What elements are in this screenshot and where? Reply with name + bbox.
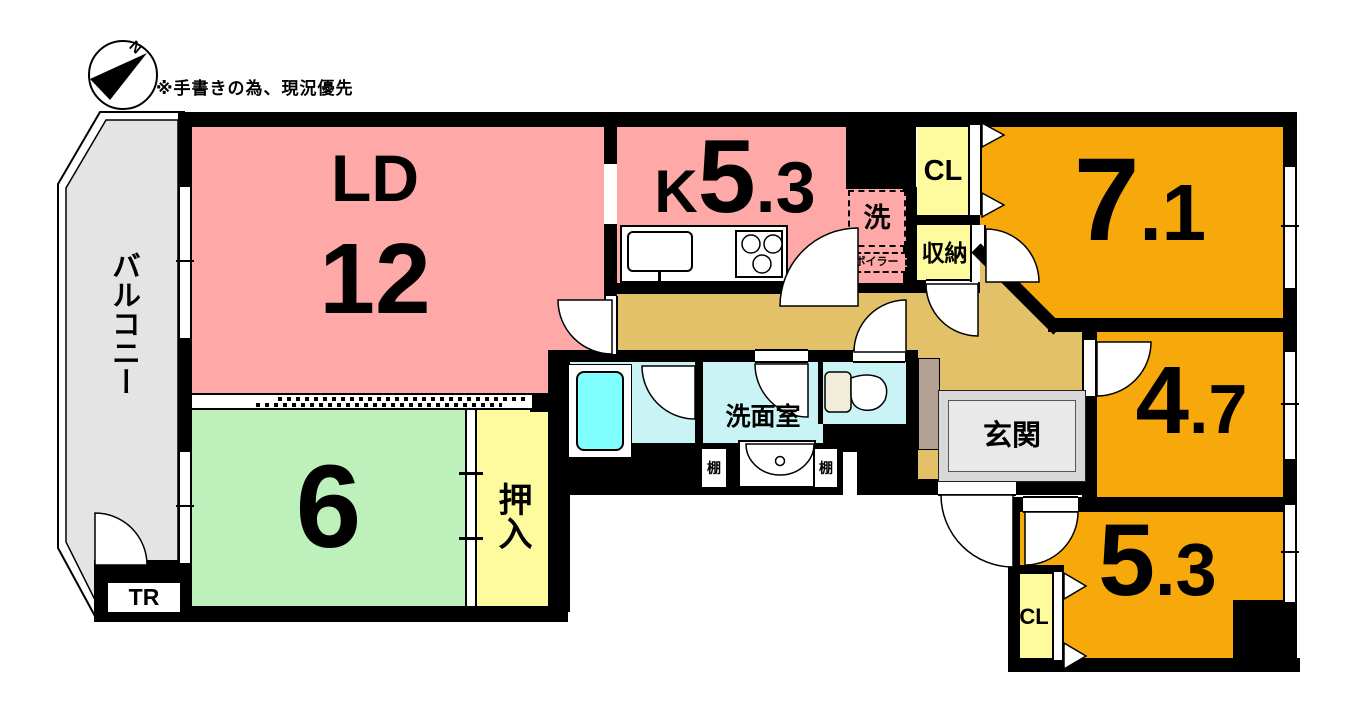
washbasin-box bbox=[738, 440, 816, 488]
wall-wetrow-west bbox=[548, 350, 570, 612]
wall-cl-storage bbox=[917, 215, 980, 225]
door-gap-washroom bbox=[755, 349, 808, 363]
sliding-door-oshiire bbox=[465, 410, 477, 606]
shelf-right-box: 棚 bbox=[813, 447, 839, 489]
kitchen-size-small: .3 bbox=[756, 147, 816, 229]
window-room6-balcony bbox=[178, 452, 192, 563]
oshiire-label: 押入 bbox=[482, 460, 542, 572]
wall-kitchen-hall bbox=[604, 283, 788, 294]
wall-laundry-hall bbox=[858, 283, 917, 293]
balcony-label: バルコニー bbox=[100, 218, 146, 428]
stove bbox=[735, 230, 783, 278]
room53-size-big: 5 bbox=[1098, 502, 1155, 619]
kitchen-name: K bbox=[654, 157, 697, 226]
room47-size-big: 4 bbox=[1136, 346, 1189, 456]
floor-plan: 棚 棚 玄関 洗 ボイラー TR bbox=[0, 0, 1360, 705]
boiler-box: ボイラー bbox=[846, 252, 907, 273]
washroom-label: 洗面室 bbox=[703, 400, 823, 434]
door-gap-room47 bbox=[1082, 340, 1097, 396]
door-gap-ld bbox=[604, 296, 618, 354]
entrance-inner: 玄関 bbox=[948, 400, 1076, 472]
window-ld-balcony bbox=[178, 187, 192, 338]
genkan-label: 玄関 bbox=[983, 422, 1041, 451]
closet-bottom-label: CL bbox=[1016, 596, 1052, 638]
ld-size: 12 bbox=[319, 222, 430, 337]
ld-name: LD bbox=[331, 140, 419, 216]
room47-size-small: .7 bbox=[1189, 369, 1247, 449]
kitchen-label-block: K 5 .3 bbox=[610, 118, 860, 236]
toilet-floor bbox=[823, 362, 906, 424]
door-gap-kitchen-hall bbox=[788, 282, 858, 294]
note-text: ※手書きの為、現況優先 bbox=[156, 80, 354, 97]
shelf-left-box: 棚 bbox=[700, 447, 728, 489]
hatch-line-1 bbox=[278, 397, 528, 401]
wall-bath-washroom bbox=[695, 362, 703, 443]
bathtub bbox=[576, 371, 624, 451]
sliding-partition-ld-room6 bbox=[192, 393, 532, 410]
laundry-label: 洗 bbox=[864, 205, 891, 232]
shelf-left-label: 棚 bbox=[707, 461, 721, 475]
kitchen-sink bbox=[627, 231, 693, 272]
kitchen-faucet bbox=[658, 270, 661, 283]
gap-toilet-service bbox=[843, 452, 857, 495]
kitchen-size-big: 5 bbox=[698, 118, 756, 237]
hallway-floor bbox=[617, 292, 985, 352]
closet-top-label: CL bbox=[917, 153, 969, 189]
room47-label-block: 4 .7 bbox=[1100, 346, 1283, 496]
wall-53-west bbox=[1008, 497, 1020, 672]
room71-size-big: 7 bbox=[1074, 132, 1140, 268]
window-room71 bbox=[1283, 167, 1297, 288]
wall-entrance-a bbox=[918, 479, 940, 495]
shoe-cabinet bbox=[918, 358, 940, 450]
door-gap-toilet bbox=[853, 349, 905, 363]
storage-label: 収納 bbox=[917, 238, 972, 268]
wall-south-west bbox=[178, 606, 568, 622]
shelf-right-label: 棚 bbox=[819, 461, 833, 475]
room53-size-small: .3 bbox=[1155, 527, 1217, 612]
room6-size: 6 bbox=[192, 412, 465, 602]
window-room47 bbox=[1283, 352, 1297, 459]
boiler-label: ボイラー bbox=[855, 257, 899, 268]
trunk-room-box: TR bbox=[106, 581, 182, 614]
wall-toilet-south bbox=[823, 424, 918, 445]
wall-hatch-stub bbox=[530, 393, 550, 412]
door-gap-room71 bbox=[970, 225, 986, 282]
compass-circle bbox=[88, 40, 158, 110]
room53-label-block: 5 .3 bbox=[1035, 502, 1280, 657]
window-room53 bbox=[1283, 505, 1297, 602]
ld-label-block: LD 12 bbox=[255, 140, 495, 355]
room71-size-small: .1 bbox=[1139, 167, 1206, 259]
folding-door-track-cl-top bbox=[968, 125, 982, 215]
hatch-line-2 bbox=[256, 403, 502, 407]
wall-toilet-east bbox=[906, 362, 918, 426]
room71-label-block: 7 .1 bbox=[1015, 132, 1265, 304]
trunk-room-label: TR bbox=[129, 586, 160, 609]
